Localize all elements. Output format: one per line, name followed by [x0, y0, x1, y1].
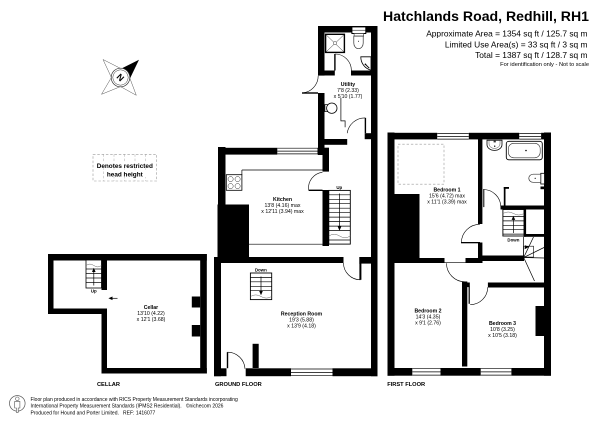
svg-text:x 9'1 (2.76): x 9'1 (2.76) — [415, 321, 441, 327]
svg-text:x 11'1 (3.39) max: x 11'1 (3.39) max — [427, 200, 467, 206]
svg-text:Floor plan produced in accorda: Floor plan produced in accordance with R… — [31, 397, 239, 403]
svg-text:International Property Measure: International Property Measurement Stand… — [31, 403, 224, 410]
svg-text:x 12'11 (3.94) max: x 12'11 (3.94) max — [261, 209, 304, 215]
svg-text:Down: Down — [507, 237, 519, 242]
svg-text:x 13'9 (4.18): x 13'9 (4.18) — [287, 324, 316, 330]
svg-text:x 12'1 (3.68): x 12'1 (3.68) — [137, 317, 166, 323]
svg-text:Approximate Area = 1354 sq ft: Approximate Area = 1354 sq ft / 125.7 sq… — [426, 28, 587, 38]
svg-text:Produced for Hound and Porter: Produced for Hound and Porter Limited. R… — [31, 410, 156, 416]
svg-text:Up: Up — [91, 289, 97, 294]
svg-text:Denotes restricted: Denotes restricted — [97, 163, 153, 170]
svg-text:GROUND FLOOR: GROUND FLOOR — [215, 382, 262, 388]
svg-text:x 5'10 (1.77): x 5'10 (1.77) — [334, 94, 363, 100]
svg-text:Limited Use Area(s) = 33 sq ft: Limited Use Area(s) = 33 sq ft / 3 sq m — [445, 39, 588, 49]
svg-text:Down: Down — [255, 268, 267, 273]
svg-text:Up: Up — [336, 185, 342, 190]
svg-text:FIRST FLOOR: FIRST FLOOR — [387, 382, 425, 388]
svg-text:For identification only - Not: For identification only - Not to scale — [500, 62, 589, 68]
svg-text:CELLAR: CELLAR — [97, 382, 120, 388]
svg-text:Total = 1387 sq ft / 128.7 sq: Total = 1387 sq ft / 128.7 sq m — [475, 50, 587, 60]
svg-text:x 10'5 (3.18): x 10'5 (3.18) — [488, 333, 517, 339]
svg-text:Hatchlands Road, Redhill, RH1: Hatchlands Road, Redhill, RH1 — [383, 8, 589, 24]
svg-text:head height: head height — [107, 172, 144, 179]
